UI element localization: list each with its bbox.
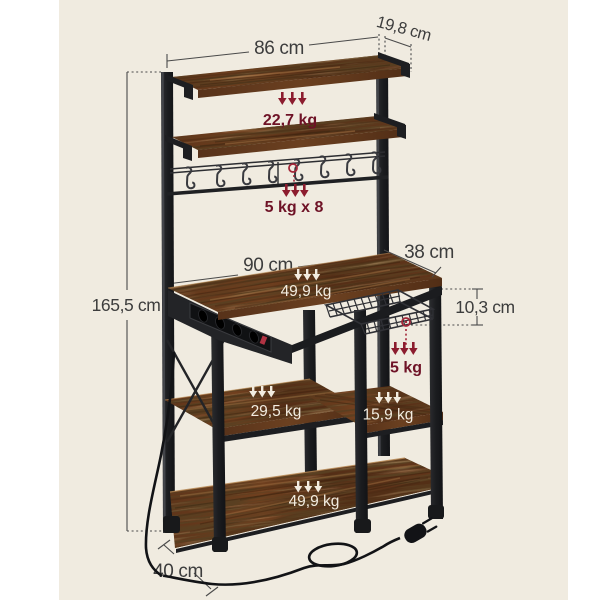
svg-text:22,7 kg: 22,7 kg [263, 112, 317, 129]
svg-text:38 cm: 38 cm [404, 242, 454, 263]
svg-text:10,3 cm: 10,3 cm [455, 297, 514, 317]
svg-text:5 kg: 5 kg [390, 360, 422, 377]
svg-text:15,9 kg: 15,9 kg [363, 407, 414, 424]
svg-text:49,9 kg: 49,9 kg [281, 283, 332, 300]
svg-text:165,5 cm: 165,5 cm [92, 295, 161, 315]
svg-text:86 cm: 86 cm [254, 38, 304, 59]
svg-text:49,9 kg: 49,9 kg [289, 493, 340, 510]
svg-text:29,5 kg: 29,5 kg [251, 403, 302, 420]
svg-text:5 kg x 8: 5 kg x 8 [265, 199, 324, 216]
